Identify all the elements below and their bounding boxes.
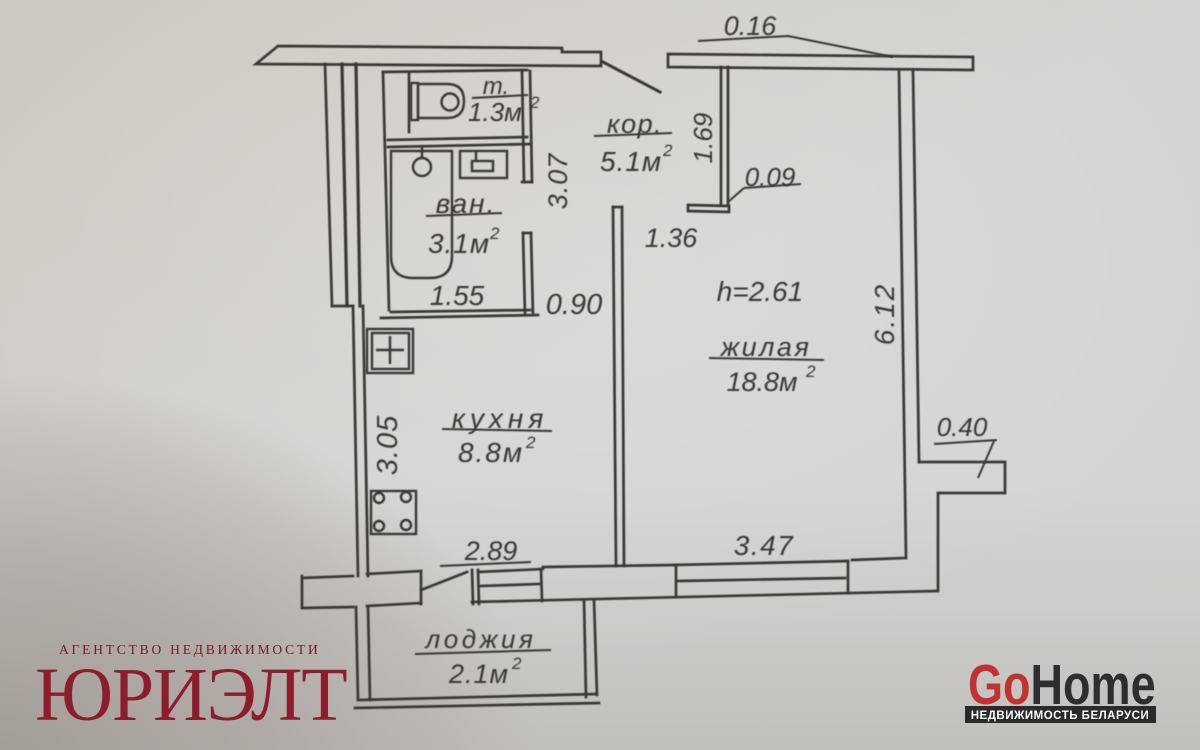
svg-text:6.12: 6.12	[869, 283, 900, 346]
svg-text:5.1м: 5.1м	[600, 146, 662, 177]
svg-text:0.16: 0.16	[724, 11, 778, 41]
svg-text:кухня: кухня	[452, 403, 549, 434]
svg-text:жилая: жилая	[720, 332, 812, 362]
svg-text:8.8м: 8.8м	[458, 437, 524, 468]
svg-text:3.05: 3.05	[372, 415, 404, 475]
svg-text:ЮРИЭЛТ: ЮРИЭЛТ	[35, 653, 347, 737]
svg-text:2: 2	[525, 433, 536, 452]
svg-text:1.69: 1.69	[688, 113, 718, 164]
svg-text:т.: т.	[483, 73, 509, 100]
svg-text:2: 2	[511, 654, 522, 673]
svg-text:1.55: 1.55	[430, 280, 485, 311]
svg-text:h=2.61: h=2.61	[717, 276, 803, 307]
svg-text:3.07: 3.07	[543, 153, 573, 210]
svg-text:1.36: 1.36	[645, 223, 699, 253]
svg-text:2: 2	[489, 224, 500, 243]
svg-text:3.1м: 3.1м	[428, 228, 490, 259]
svg-text:3.47: 3.47	[734, 530, 795, 561]
svg-text:1.3м: 1.3м	[468, 97, 522, 127]
svg-text:2.89: 2.89	[464, 536, 518, 566]
svg-text:2: 2	[662, 141, 673, 160]
svg-text:2: 2	[529, 93, 540, 112]
svg-text:18.8м: 18.8м	[726, 367, 797, 397]
svg-text:0.09: 0.09	[745, 162, 796, 192]
svg-text:ван.: ван.	[436, 188, 497, 219]
svg-text:2.1м: 2.1м	[448, 659, 509, 689]
svg-text:2: 2	[805, 362, 816, 381]
svg-text:0.90: 0.90	[546, 289, 602, 321]
svg-text:лоджия: лоджия	[424, 624, 537, 654]
svg-text:кор.: кор.	[607, 109, 663, 139]
svg-text:0.40: 0.40	[937, 412, 988, 442]
svg-text:НЕДВИЖИМОСТЬ БЕЛАРУСИ: НЕДВИЖИМОСТЬ БЕЛАРУСИ	[971, 710, 1149, 722]
